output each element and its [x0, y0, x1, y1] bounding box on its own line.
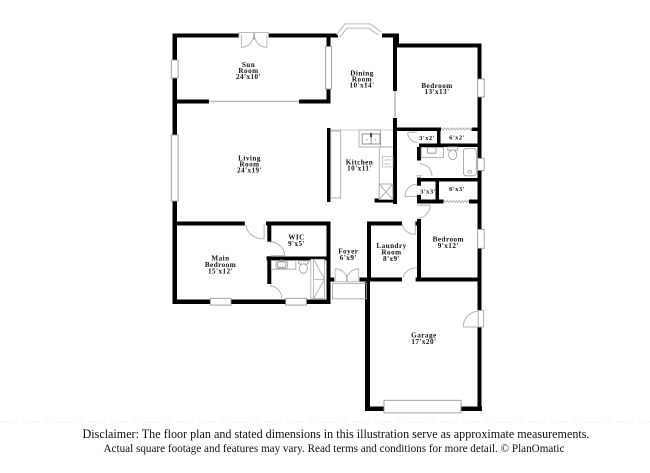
svg-text:3'x3': 3'x3' — [420, 188, 436, 195]
svg-text:6'x2': 6'x2' — [449, 135, 465, 142]
svg-text:Actual square footage and feat: Actual square footage and features may v… — [104, 443, 565, 455]
svg-text:17'x20': 17'x20' — [411, 338, 436, 346]
svg-text:24'x19': 24'x19' — [237, 167, 262, 175]
svg-text:13'x13': 13'x13' — [424, 88, 449, 96]
svg-text:24'x10': 24'x10' — [236, 73, 261, 81]
svg-text:15'x12': 15'x12' — [208, 267, 233, 275]
svg-text:3'x2': 3'x2' — [419, 135, 435, 142]
svg-text:6'x3': 6'x3' — [449, 186, 465, 193]
svg-text:8'x9': 8'x9' — [383, 255, 400, 263]
svg-text:Disclaimer: The floor plan and: Disclaimer: The floor plan and stated di… — [83, 427, 590, 441]
svg-text:6'x9': 6'x9' — [340, 254, 357, 262]
svg-text:9'x5': 9'x5' — [288, 240, 305, 248]
svg-text:10'x11': 10'x11' — [347, 165, 372, 173]
svg-text:10'x14': 10'x14' — [349, 82, 374, 90]
svg-text:9'x12': 9'x12' — [438, 242, 459, 250]
svg-text:ELC: ELC — [385, 162, 392, 166]
